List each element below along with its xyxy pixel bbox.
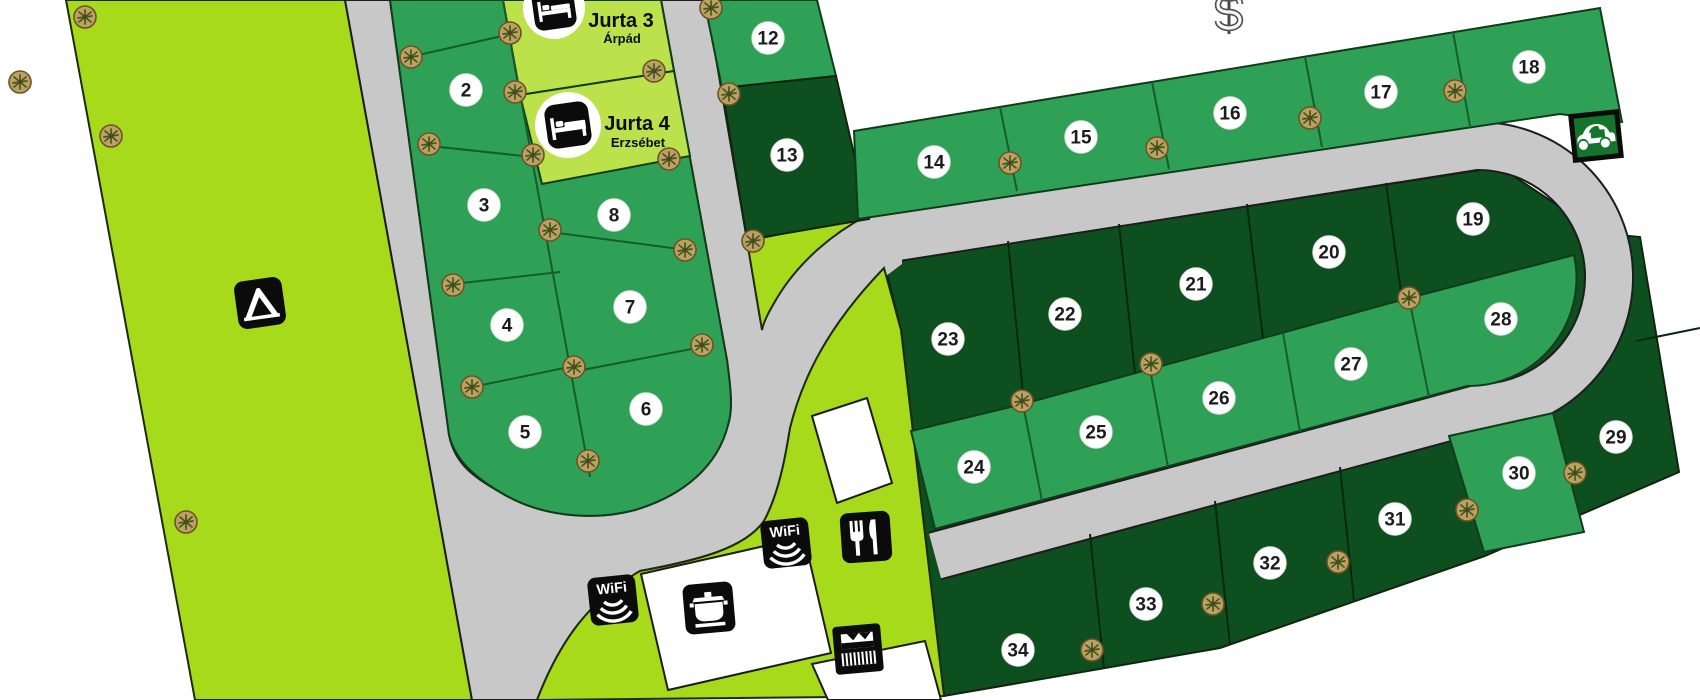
svg-text:28: 28 [1490,310,1511,331]
svg-text:WiFi: WiFi [769,523,801,542]
svg-text:16: 16 [1219,104,1240,125]
svg-text:23: 23 [937,330,958,351]
svg-text:Árpád: Árpád [603,31,641,46]
svg-text:14: 14 [923,153,945,174]
svg-text:26: 26 [1208,389,1229,410]
svg-text:3: 3 [479,196,490,217]
svg-text:22: 22 [1054,305,1075,326]
svg-text:29: 29 [1605,428,1626,449]
svg-text:21: 21 [1185,275,1207,296]
svg-text:34: 34 [1007,641,1029,662]
svg-text:Jurta 4: Jurta 4 [604,113,670,135]
svg-text:6: 6 [641,400,652,421]
svg-text:2: 2 [461,81,472,102]
svg-text:27: 27 [1340,355,1361,376]
svg-text:20: 20 [1318,243,1339,264]
svg-text:15: 15 [1070,128,1092,149]
svg-text:24: 24 [963,458,985,479]
svg-text:12: 12 [757,29,778,50]
svg-text:19: 19 [1462,210,1483,231]
svg-text:30: 30 [1508,464,1529,485]
svg-text:18: 18 [1518,58,1539,79]
svg-text:33: 33 [1135,595,1156,616]
svg-text:13: 13 [776,146,797,167]
svg-text:7: 7 [625,298,636,319]
svg-text:17: 17 [1370,83,1391,104]
svg-text:25: 25 [1085,423,1107,444]
svg-text:31: 31 [1384,510,1406,531]
svg-text:5: 5 [520,423,531,444]
svg-text:WiFi: WiFi [596,580,628,599]
svg-text:4: 4 [502,316,513,337]
svg-text:8: 8 [609,206,620,227]
svg-text:Jurta 3: Jurta 3 [588,10,654,32]
svg-text:32: 32 [1259,554,1280,575]
svg-text:Erzsébet: Erzsébet [611,135,666,150]
